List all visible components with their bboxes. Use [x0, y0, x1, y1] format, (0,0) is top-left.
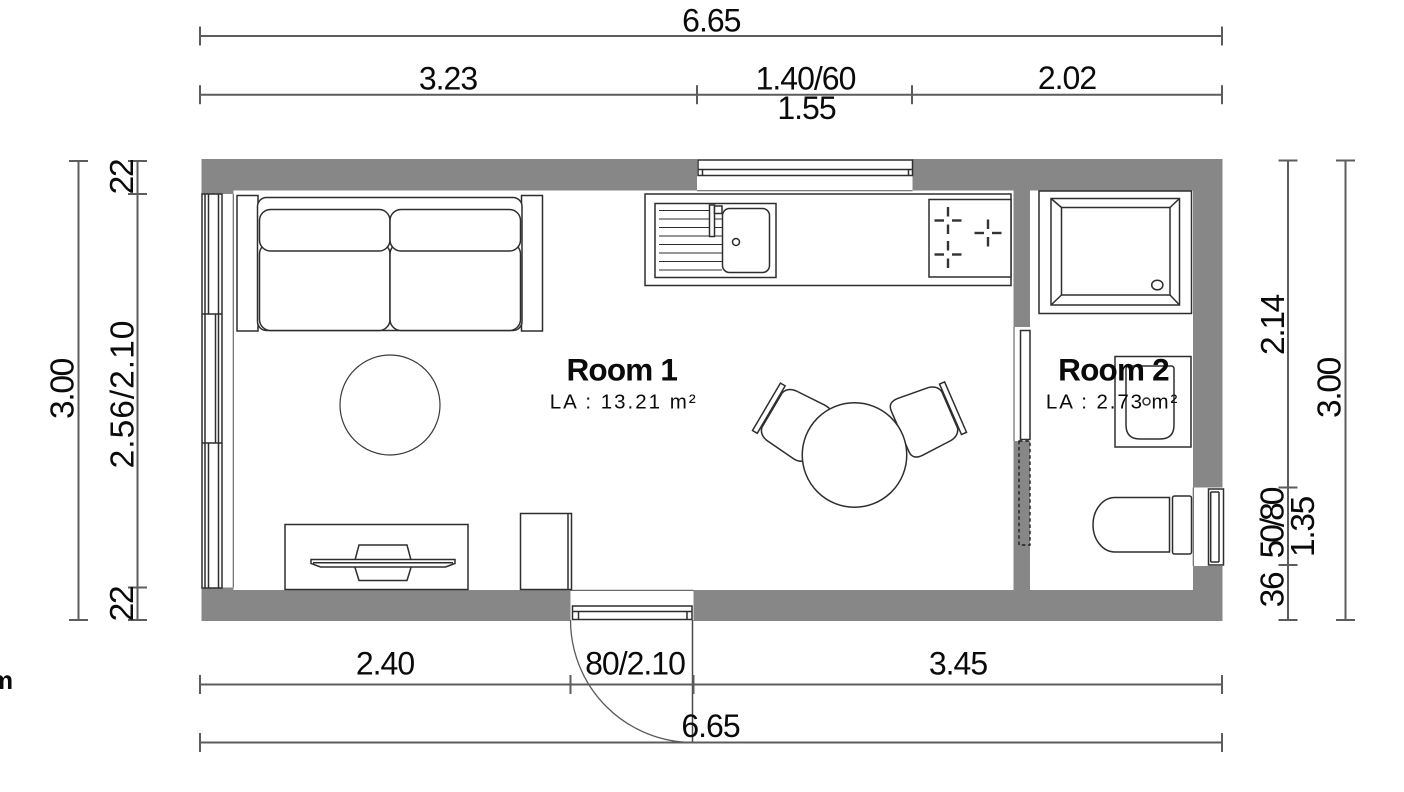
- svg-text:2.40: 2.40: [356, 646, 414, 682]
- svg-text:80/2.10: 80/2.10: [585, 646, 685, 682]
- svg-text:2.56/2.10: 2.56/2.10: [105, 320, 142, 469]
- svg-text:22: 22: [104, 160, 141, 195]
- svg-text:Room 2: Room 2: [1058, 352, 1169, 388]
- svg-text:Room 1: Room 1: [566, 352, 677, 388]
- svg-text:6.65: 6.65: [681, 708, 739, 744]
- svg-text:2.02: 2.02: [1038, 60, 1096, 96]
- svg-text:2.14: 2.14: [1255, 294, 1292, 355]
- svg-text:6.65: 6.65: [682, 3, 740, 39]
- svg-text:m: m: [0, 665, 13, 695]
- svg-text:1.55: 1.55: [777, 90, 835, 126]
- svg-text:3.23: 3.23: [419, 61, 477, 97]
- svg-text:3.45: 3.45: [929, 646, 987, 682]
- svg-text:3.00: 3.00: [45, 358, 82, 419]
- svg-text:3.00: 3.00: [1312, 357, 1349, 418]
- svg-text:LA : 13.21 m²: LA : 13.21 m²: [550, 391, 698, 414]
- svg-text:36: 36: [1255, 572, 1292, 607]
- svg-text:1.35: 1.35: [1285, 496, 1322, 557]
- svg-text:LA : 2.73 m²: LA : 2.73 m²: [1046, 391, 1179, 414]
- svg-text:22: 22: [104, 587, 141, 622]
